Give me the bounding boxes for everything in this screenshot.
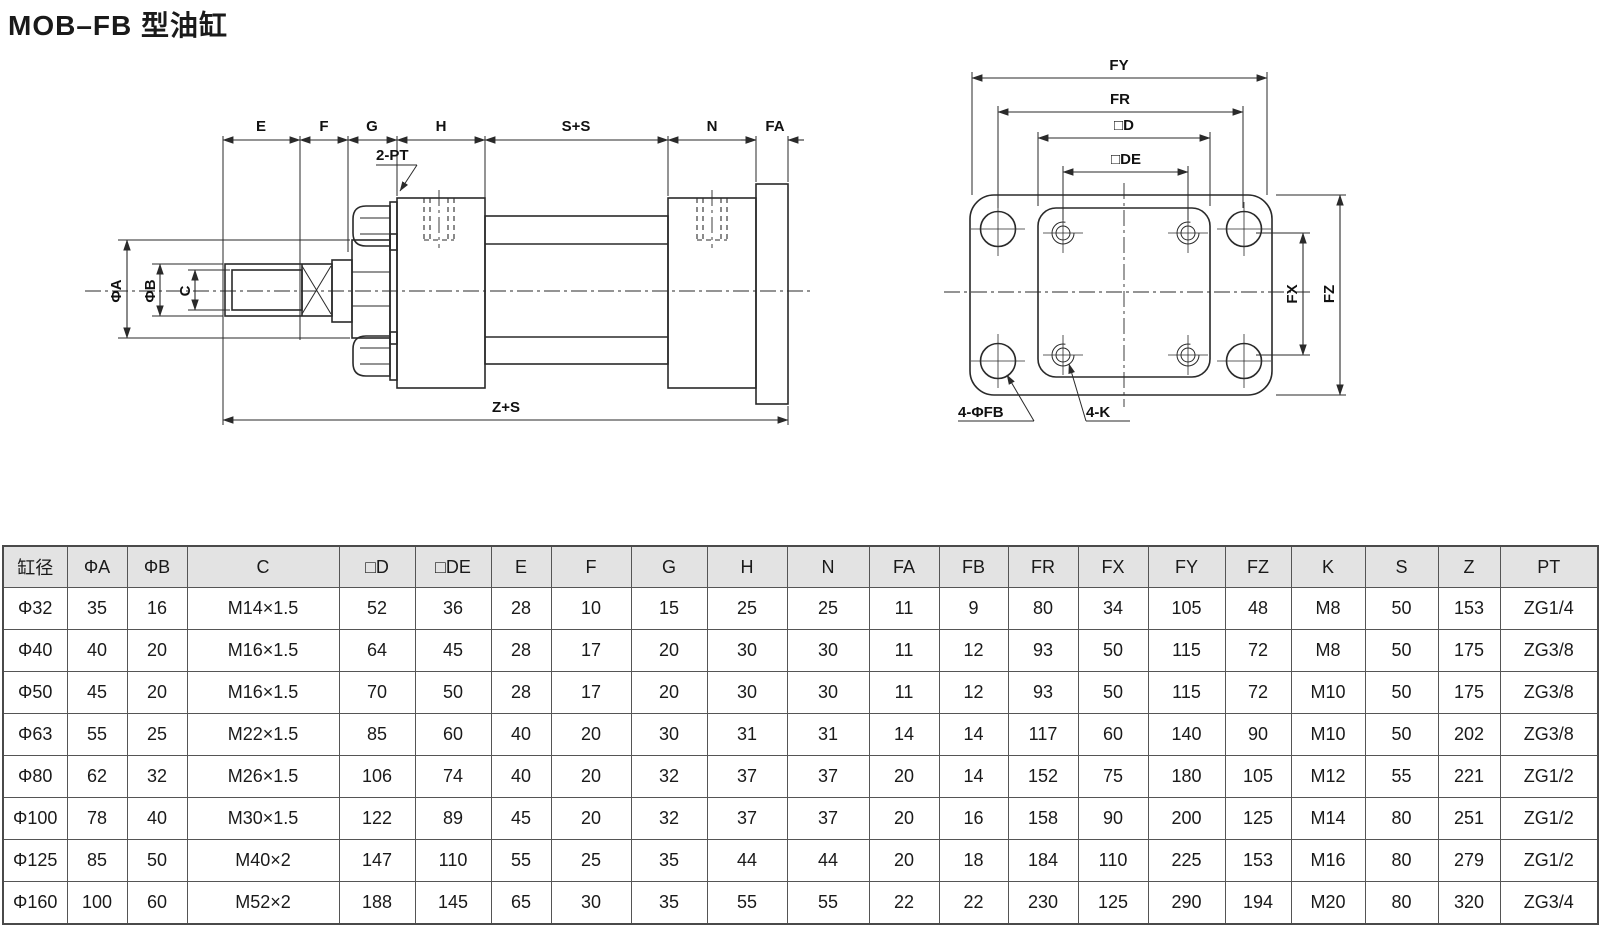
datasheet-page: MOB–FB 型油缸 [0, 0, 1599, 946]
hole-label-k: 4-K [1086, 404, 1110, 421]
table-cell: 30 [787, 630, 869, 672]
table-cell: 34 [1078, 588, 1148, 630]
rod-thread [232, 270, 302, 310]
table-cell: 110 [1078, 840, 1148, 882]
table-cell: 60 [415, 714, 491, 756]
dim-label-fy: FY [1109, 57, 1128, 74]
front-head [397, 198, 485, 388]
table-cell: ZG3/4 [1500, 882, 1598, 925]
column-header: Z [1438, 546, 1500, 588]
table-cell: 22 [869, 882, 939, 925]
tie-rod-nut-bottom [353, 336, 390, 376]
tie-rod-washer-bottom [390, 332, 397, 380]
mounting-holes [971, 202, 1271, 388]
table-cell: 20 [631, 630, 707, 672]
table-cell: 75 [1078, 756, 1148, 798]
column-header: K [1291, 546, 1365, 588]
table-row: Φ323516M14×1.552362810152525119803410548… [3, 588, 1598, 630]
table-cell: 20 [869, 798, 939, 840]
table-cell: 25 [127, 714, 187, 756]
dim-label-h: H [436, 118, 447, 135]
table-row: Φ1007840M30×1.51228945203237372016158902… [3, 798, 1598, 840]
dim-label-c: C [177, 285, 194, 296]
table-cell: 20 [869, 756, 939, 798]
table-cell: 290 [1148, 882, 1225, 925]
table-cell: 80 [1365, 840, 1438, 882]
table-cell: 55 [67, 714, 127, 756]
column-header: □D [339, 546, 415, 588]
table-cell: 115 [1148, 630, 1225, 672]
table-cell: 52 [339, 588, 415, 630]
table-cell: 175 [1438, 630, 1500, 672]
table-cell: 251 [1438, 798, 1500, 840]
table-row: Φ635525M22×1.585604020303131141411760140… [3, 714, 1598, 756]
table-cell: 35 [631, 840, 707, 882]
table-cell: 194 [1225, 882, 1291, 925]
table-cell: 50 [1365, 672, 1438, 714]
table-cell: 30 [787, 672, 869, 714]
table-cell: 90 [1225, 714, 1291, 756]
table-row: Φ806232M26×1.510674402032373720141527518… [3, 756, 1598, 798]
table-cell: 70 [339, 672, 415, 714]
table-cell: 35 [631, 882, 707, 925]
table-cell: 14 [939, 756, 1008, 798]
rear-flange [756, 184, 788, 404]
table-cell: 106 [339, 756, 415, 798]
table-cell: 45 [67, 672, 127, 714]
table-cell: 125 [1225, 798, 1291, 840]
table-cell: 175 [1438, 672, 1500, 714]
row-label-bore: Φ63 [3, 714, 67, 756]
table-cell: 55 [707, 882, 787, 925]
table-cell: 20 [551, 756, 631, 798]
table-cell: 145 [415, 882, 491, 925]
table-row: Φ16010060M52×218814565303555552222230125… [3, 882, 1598, 925]
table-cell: 80 [1365, 798, 1438, 840]
table-cell: 25 [551, 840, 631, 882]
table-cell: 80 [1365, 882, 1438, 925]
table-row: Φ404020M16×1.564452817203030111293501157… [3, 630, 1598, 672]
dim-label-zs: Z+S [492, 399, 520, 416]
table-cell: 20 [631, 672, 707, 714]
column-header: G [631, 546, 707, 588]
table-cell: 32 [127, 756, 187, 798]
table-cell: 221 [1438, 756, 1500, 798]
table-cell: 48 [1225, 588, 1291, 630]
table-cell: 36 [415, 588, 491, 630]
table-cell: 55 [787, 882, 869, 925]
table-cell: 125 [1078, 882, 1148, 925]
table-cell: 37 [707, 756, 787, 798]
column-header: S [1365, 546, 1438, 588]
table-cell: 28 [491, 672, 551, 714]
table-cell: 28 [491, 588, 551, 630]
table-cell: 50 [1078, 672, 1148, 714]
table-cell: M14×1.5 [187, 588, 339, 630]
column-header: C [187, 546, 339, 588]
table-cell: 40 [127, 798, 187, 840]
table-cell: 89 [415, 798, 491, 840]
column-header: FB [939, 546, 1008, 588]
table-cell: 147 [339, 840, 415, 882]
column-header: FY [1148, 546, 1225, 588]
row-label-bore: Φ125 [3, 840, 67, 882]
side-view: E F G H S+S N FA 2-PT ΦA [85, 118, 812, 425]
table-cell: M10 [1291, 672, 1365, 714]
table-cell: 225 [1148, 840, 1225, 882]
table-cell: 17 [551, 630, 631, 672]
table-cell: 140 [1148, 714, 1225, 756]
table-cell: 20 [551, 798, 631, 840]
table-cell: 11 [869, 630, 939, 672]
table-cell: 45 [415, 630, 491, 672]
table-cell: 20 [551, 714, 631, 756]
table-row: Φ504520M16×1.570502817203030111293501157… [3, 672, 1598, 714]
table-cell: 50 [415, 672, 491, 714]
table-cell: 55 [491, 840, 551, 882]
table-cell: 93 [1008, 672, 1078, 714]
table-cell: 184 [1008, 840, 1078, 882]
table-cell: 25 [787, 588, 869, 630]
table-cell: 15 [631, 588, 707, 630]
table-cell: M8 [1291, 588, 1365, 630]
table-cell: 85 [67, 840, 127, 882]
dim-label-de: □DE [1111, 151, 1141, 168]
column-header: ΦB [127, 546, 187, 588]
table-cell: 17 [551, 672, 631, 714]
table-cell: M16 [1291, 840, 1365, 882]
table-cell: 40 [67, 630, 127, 672]
table-cell: 10 [551, 588, 631, 630]
table-cell: 93 [1008, 630, 1078, 672]
table-cell: M16×1.5 [187, 672, 339, 714]
table-cell: 37 [707, 798, 787, 840]
column-header: F [551, 546, 631, 588]
table-cell: 20 [869, 840, 939, 882]
table-cell: 40 [491, 714, 551, 756]
table-cell: ZG1/2 [1500, 756, 1598, 798]
table-cell: 25 [707, 588, 787, 630]
table-cell: 40 [491, 756, 551, 798]
table-cell: M10 [1291, 714, 1365, 756]
table-cell: 279 [1438, 840, 1500, 882]
table-cell: 65 [491, 882, 551, 925]
table-cell: 200 [1148, 798, 1225, 840]
header-row: 缸径ΦAΦBC□D□DEEFGHNFAFBFRFXFYFZKSZPT [3, 546, 1598, 588]
table-cell: 188 [339, 882, 415, 925]
row-label-bore: Φ160 [3, 882, 67, 925]
table-cell: 44 [707, 840, 787, 882]
dim-label-n: N [707, 118, 718, 135]
table-cell: 37 [787, 756, 869, 798]
table-cell: 30 [631, 714, 707, 756]
table-cell: 153 [1225, 840, 1291, 882]
table-cell: 152 [1008, 756, 1078, 798]
dim-label-g: G [366, 118, 378, 135]
dim-label-e: E [256, 118, 266, 135]
table-cell: 12 [939, 672, 1008, 714]
table-cell: 62 [67, 756, 127, 798]
table-cell: M52×2 [187, 882, 339, 925]
table-cell: 105 [1148, 588, 1225, 630]
table-cell: ZG1/2 [1500, 840, 1598, 882]
dim-label-fz: FZ [1321, 285, 1338, 303]
table-cell: 80 [1008, 588, 1078, 630]
table-cell: M26×1.5 [187, 756, 339, 798]
table-cell: 44 [787, 840, 869, 882]
table-cell: 60 [1078, 714, 1148, 756]
column-header: E [491, 546, 551, 588]
table-cell: 30 [551, 882, 631, 925]
hole-label-fb: 4-ΦFB [958, 404, 1004, 421]
row-label-bore: Φ32 [3, 588, 67, 630]
table-cell: 90 [1078, 798, 1148, 840]
row-label-bore: Φ40 [3, 630, 67, 672]
technical-drawings: E F G H S+S N FA 2-PT ΦA [0, 40, 1599, 510]
table-cell: 50 [1365, 714, 1438, 756]
table-cell: 64 [339, 630, 415, 672]
side-view-bottom-dimension: Z+S [223, 399, 788, 425]
column-header: □DE [415, 546, 491, 588]
dim-label-phi-a: ΦA [108, 279, 125, 302]
column-header: FZ [1225, 546, 1291, 588]
table-cell: 105 [1225, 756, 1291, 798]
page-title: MOB–FB 型油缸 [8, 4, 228, 44]
table-cell: 122 [339, 798, 415, 840]
tapped-holes [1043, 213, 1208, 375]
dim-label-ss: S+S [562, 118, 591, 135]
dimension-table: 缸径ΦAΦBC□D□DEEFGHNFAFBFRFXFYFZKSZPT Φ3235… [2, 545, 1599, 925]
table-cell: 30 [707, 630, 787, 672]
table-cell: ZG3/8 [1500, 630, 1598, 672]
table-cell: 32 [631, 756, 707, 798]
side-view-left-dimensions: ΦA ΦB C [108, 240, 350, 338]
table-cell: 30 [707, 672, 787, 714]
column-header: H [707, 546, 787, 588]
table-cell: 85 [339, 714, 415, 756]
table-row: Φ1258550M40×2147110552535444420181841102… [3, 840, 1598, 882]
column-header: N [787, 546, 869, 588]
table-cell: 16 [939, 798, 1008, 840]
table-cell: 50 [1365, 588, 1438, 630]
table-cell: 180 [1148, 756, 1225, 798]
table-cell: M20 [1291, 882, 1365, 925]
row-label-bore: Φ80 [3, 756, 67, 798]
table-cell: 16 [127, 588, 187, 630]
table-cell: 115 [1148, 672, 1225, 714]
table-cell: 74 [415, 756, 491, 798]
table-cell: ZG1/4 [1500, 588, 1598, 630]
table-cell: 20 [127, 672, 187, 714]
table-cell: 31 [787, 714, 869, 756]
table-cell: 14 [939, 714, 1008, 756]
table-cell: 20 [127, 630, 187, 672]
dim-label-d: □D [1114, 117, 1134, 134]
rod-nut [352, 240, 390, 338]
table-cell: 32 [631, 798, 707, 840]
table-cell: M30×1.5 [187, 798, 339, 840]
table-cell: 18 [939, 840, 1008, 882]
table-cell: 45 [491, 798, 551, 840]
table-cell: 202 [1438, 714, 1500, 756]
table-cell: 14 [869, 714, 939, 756]
table-cell: 320 [1438, 882, 1500, 925]
table-cell: ZG3/8 [1500, 672, 1598, 714]
dim-label-fa: FA [765, 118, 784, 135]
side-view-top-dimensions: E F G H S+S N FA [223, 118, 804, 425]
table-cell: M12 [1291, 756, 1365, 798]
dim-label-fr: FR [1110, 91, 1130, 108]
table-cell: 50 [1365, 630, 1438, 672]
table-cell: 78 [67, 798, 127, 840]
column-header: FA [869, 546, 939, 588]
cylinder-tube [485, 216, 668, 364]
table-cell: 153 [1438, 588, 1500, 630]
table-cell: 158 [1008, 798, 1078, 840]
front-view: FY FR □D □DE FX [944, 57, 1346, 421]
tie-rod-washer-top [390, 202, 397, 250]
column-header: FX [1078, 546, 1148, 588]
table-cell: M22×1.5 [187, 714, 339, 756]
dim-label-f: F [319, 118, 328, 135]
column-header: FR [1008, 546, 1078, 588]
table-cell: 50 [127, 840, 187, 882]
table-cell: 11 [869, 672, 939, 714]
table-cell: 12 [939, 630, 1008, 672]
table-cell: M40×2 [187, 840, 339, 882]
table-cell: M8 [1291, 630, 1365, 672]
table-cell: 100 [67, 882, 127, 925]
table-cell: 28 [491, 630, 551, 672]
table-cell: M16×1.5 [187, 630, 339, 672]
table-cell: 117 [1008, 714, 1078, 756]
row-label-bore: Φ100 [3, 798, 67, 840]
table-cell: 50 [1078, 630, 1148, 672]
table-cell: ZG3/8 [1500, 714, 1598, 756]
dim-label-fx: FX [1284, 284, 1301, 303]
table-cell: 72 [1225, 630, 1291, 672]
front-view-right-dimensions: FX FZ [1256, 195, 1346, 395]
table-cell: 35 [67, 588, 127, 630]
table-cell: 55 [1365, 756, 1438, 798]
table-cell: 9 [939, 588, 1008, 630]
port-label: 2-PT [376, 147, 409, 164]
column-header: ΦA [67, 546, 127, 588]
table-cell: 60 [127, 882, 187, 925]
table-cell: M14 [1291, 798, 1365, 840]
column-header: PT [1500, 546, 1598, 588]
table-cell: 110 [415, 840, 491, 882]
column-header: 缸径 [3, 546, 67, 588]
table-cell: ZG1/2 [1500, 798, 1598, 840]
table-cell: 31 [707, 714, 787, 756]
table-cell: 72 [1225, 672, 1291, 714]
table-cell: 230 [1008, 882, 1078, 925]
table-cell: 37 [787, 798, 869, 840]
table-cell: 11 [869, 588, 939, 630]
table-cell: 22 [939, 882, 1008, 925]
row-label-bore: Φ50 [3, 672, 67, 714]
dim-label-phi-b: ΦB [142, 279, 159, 302]
